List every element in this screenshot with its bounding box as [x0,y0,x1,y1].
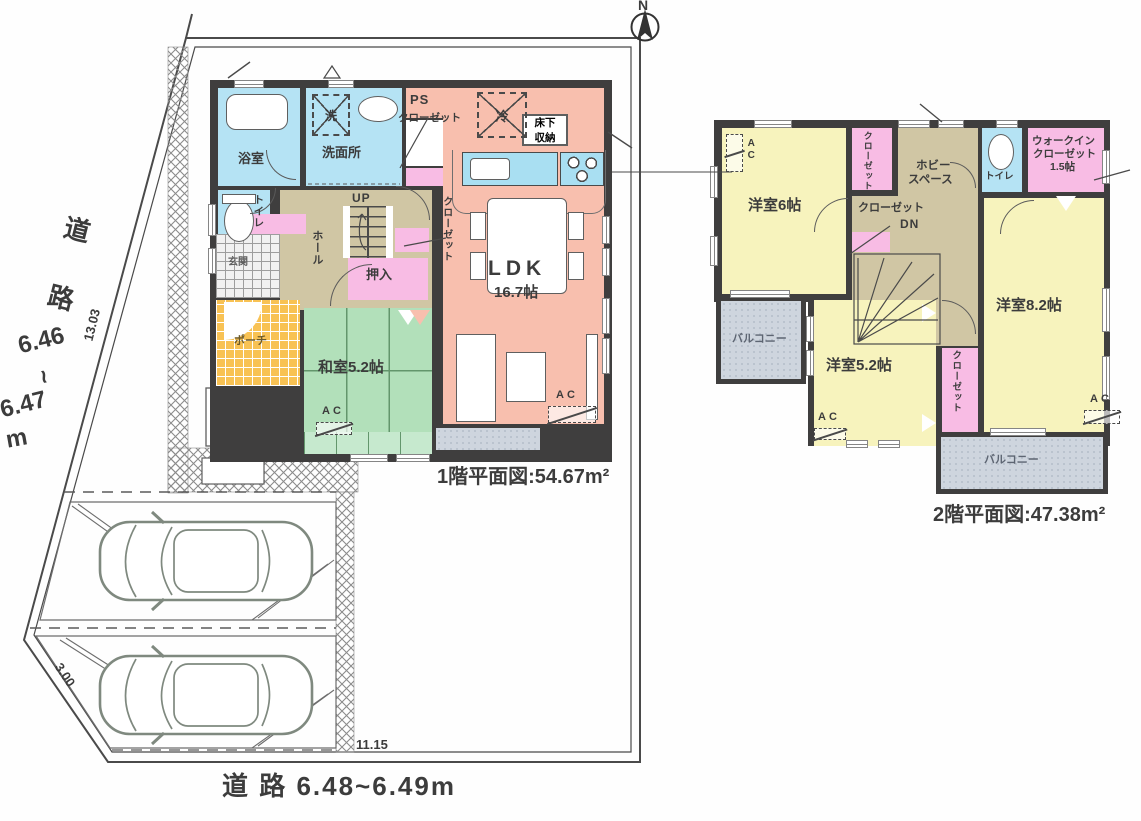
window [602,216,610,244]
label-ldk: LDK [488,258,546,281]
north-arrow-icon [632,9,659,41]
engawa-strip [304,432,432,454]
coffee-table [506,352,546,402]
road-left-dim-4: m [4,424,30,453]
label-ac-washitsu: AC [322,406,344,418]
label-hall: ホール [310,230,322,266]
window [328,80,354,88]
label-porch: ポーチ [234,336,267,348]
door-room52 [922,304,936,322]
chair [568,212,584,240]
room-genkan [216,234,280,298]
label-hobby-2: スペース [908,174,953,186]
window [806,316,814,342]
window [350,454,388,462]
label-ac-room6: AC [745,138,756,162]
ac-unit-ldk [548,406,596,423]
label-wic-3: 1.5帖 [1050,162,1075,173]
label-bath: 浴室 [238,152,264,166]
bathtub-icon [226,94,288,130]
window [396,454,430,462]
closet-under-ps [406,120,444,166]
label-hobby-1: ホビー [916,160,951,172]
label-room6: 洋室6帖 [748,198,801,214]
sliding-door-washitsu [410,310,430,325]
label-up: UP [352,192,371,205]
window [710,236,718,266]
terrace-strip [436,428,540,450]
door-wic [1056,196,1076,211]
window [878,440,900,448]
road-bottom-label: 道 路 6.48~6.49m [222,772,456,800]
floor1-caption: 1階平面図:54.67m² [437,460,609,489]
site-dim-bottom: 11.15 [356,738,388,752]
sink-icon [358,96,398,122]
stove-icon [560,152,604,186]
closet-under-ps-lower [406,168,444,186]
label-toilet-2f: トイレ [985,172,1014,182]
kitchen-sink-icon [470,158,510,180]
floorplan-page: 洗 冷 床下 収納 [0,0,1141,821]
window [806,350,814,376]
label-wic-2: クローゼット [1033,149,1096,160]
ac-unit-room82 [1084,410,1120,424]
label-balcony-bottom: バルコニー [984,455,1039,467]
closet-by-stairs [395,228,429,252]
ac-unit-washitsu [316,422,352,435]
window [898,120,930,128]
floor-storage-label-2: 収納 [535,130,556,145]
window [602,298,610,334]
north-label: N [638,0,648,13]
label-ldk-size: 16.7帖 [494,285,538,301]
label-room82: 洋室8.2帖 [996,298,1062,314]
floor-storage-box: 床下 収納 [522,114,568,146]
window [602,248,610,276]
label-closet6: クローゼット [862,131,872,191]
window [208,204,216,236]
ac-unit-room6 [726,134,743,172]
window [1102,150,1110,184]
window [938,120,964,128]
label-washitsu: 和室5.2帖 [318,360,384,376]
window [710,166,718,198]
label-balcony-left: バルコニー [732,334,787,346]
floor2-caption: 2階平面図:47.38m² [933,498,1105,527]
label-oshiire: 押入 [366,268,392,282]
washer-label: 洗 [325,107,337,124]
chair [568,252,584,280]
window [996,120,1018,128]
label-ac-ldk: AC [556,390,578,402]
window [730,290,790,298]
window [754,120,792,128]
toilet-icon-2f [988,134,1014,170]
fridge-label: 冷 [495,106,508,125]
floor-storage-label-1: 床下 [535,115,556,130]
stairs-up [343,206,393,258]
label-dn: DN [900,218,919,231]
label-ac-room82: AC [1090,394,1112,406]
label-closet-top: クローゼット [398,113,461,124]
label-ac-room52: AC [818,412,840,424]
window [602,338,610,374]
door-room52 [922,414,936,432]
label-closet-center: クローゼット [858,203,924,215]
label-room52: 洋室5.2帖 [826,358,892,374]
window [208,248,216,274]
window [990,428,1046,436]
washing-machine-icon: 洗 [312,94,350,136]
label-wic-1: ウォークイン [1032,136,1095,147]
label-washroom: 洗面所 [322,146,361,160]
sofa [456,334,496,422]
chair [470,252,486,280]
window [234,80,264,88]
fridge-icon: 冷 [477,92,527,138]
ac-unit-room52 [814,428,846,440]
label-genkan: 玄関 [228,258,248,269]
chair [470,212,486,240]
label-toilet-1f: トイレ [252,194,263,229]
window [846,440,868,448]
label-ps: PS [410,93,429,107]
label-closet-stairs: クローゼット [440,196,451,262]
window [1102,288,1110,332]
closet-center-2f [852,232,890,252]
label-closet-mid: クローゼット [950,350,960,413]
